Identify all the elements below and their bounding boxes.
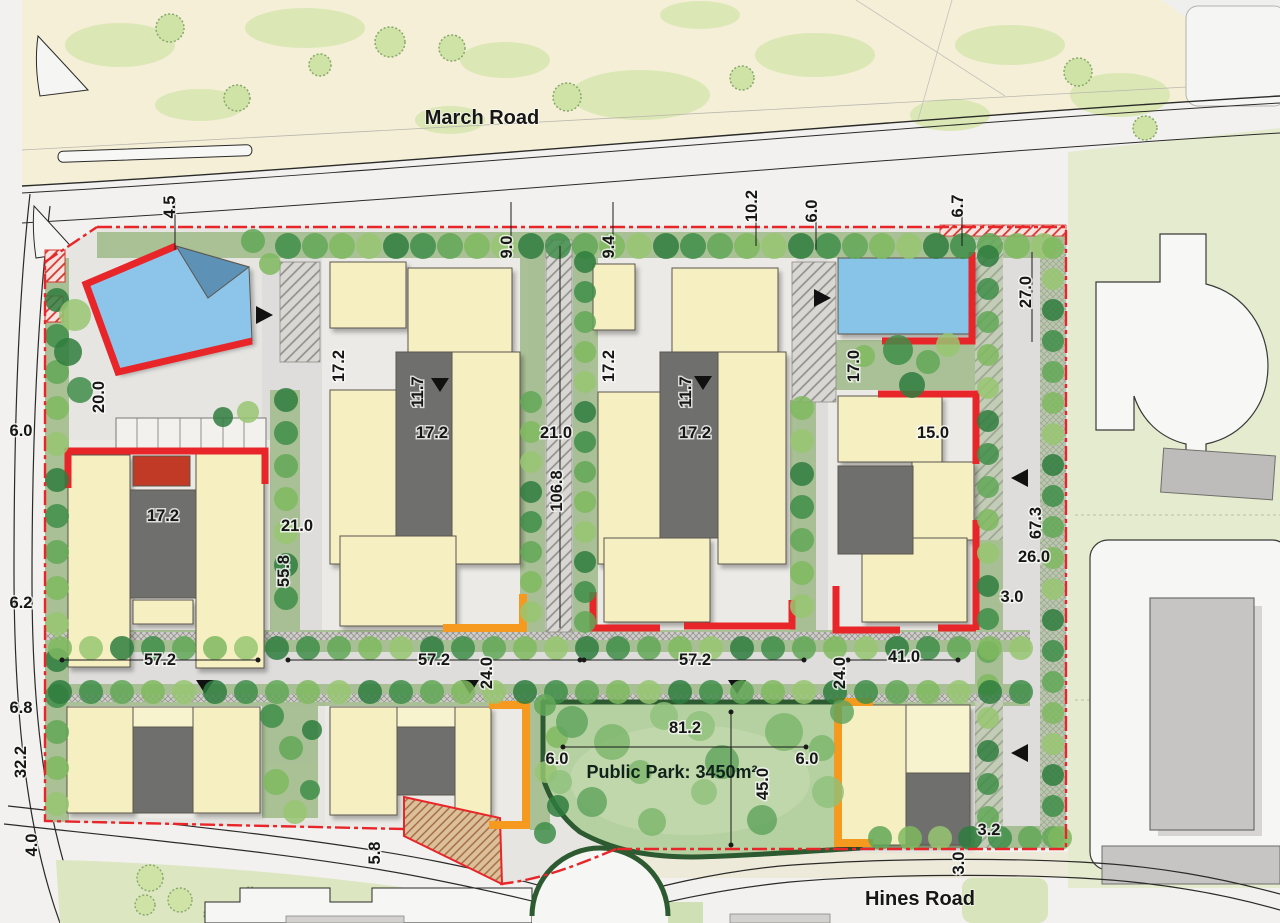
hines-road-label: Hines Road [865, 888, 975, 910]
tree [869, 233, 895, 259]
tree [45, 612, 69, 636]
tree [1042, 609, 1064, 631]
dimension-label: 11.7 [409, 376, 427, 407]
tree [626, 233, 652, 259]
tree [854, 680, 878, 704]
tree [45, 540, 69, 564]
tree [54, 338, 82, 366]
tree [574, 371, 596, 393]
tree [534, 694, 556, 716]
dimension-label: 106.8 [548, 470, 566, 511]
tree [356, 233, 382, 259]
courtyard-d [838, 466, 913, 554]
dimension-label: 6.0 [10, 422, 33, 440]
courtyard-e [133, 727, 193, 813]
dimension-label: 17.2 [679, 424, 711, 442]
tree [520, 541, 542, 563]
tree [947, 680, 971, 704]
tree [885, 680, 909, 704]
tree [574, 521, 596, 543]
tree [574, 281, 596, 303]
tree [950, 233, 976, 259]
tree [1018, 826, 1042, 850]
tree [518, 233, 544, 259]
tree [977, 773, 999, 795]
public-park-label: Public Park: 3450m² [586, 762, 757, 782]
tree [699, 680, 723, 704]
tree [110, 636, 134, 660]
tree [691, 779, 717, 805]
tree [606, 636, 630, 660]
tree [977, 707, 999, 729]
tree [534, 822, 556, 844]
tree [213, 407, 233, 427]
tree [898, 826, 922, 850]
tree [327, 636, 351, 660]
tree [1042, 640, 1064, 662]
dimension-label: 4.5 [161, 196, 179, 219]
tree [637, 636, 661, 660]
tree [1004, 233, 1030, 259]
tree [977, 443, 999, 465]
tree [172, 680, 196, 704]
tree [977, 410, 999, 432]
dimension-label: 11.7 [677, 376, 695, 407]
dimension-label: 17.2 [330, 350, 348, 382]
tree [79, 636, 103, 660]
tree [916, 350, 940, 374]
dimension-label: 17.2 [147, 507, 179, 525]
tree [574, 611, 596, 633]
tree [45, 468, 69, 492]
tree [1042, 485, 1064, 507]
tree [790, 528, 814, 552]
courtyard-f [397, 727, 455, 795]
dimension-label: 17.0 [845, 350, 863, 382]
tree [761, 636, 785, 660]
tree [45, 432, 69, 456]
dimension-label: 24.0 [831, 657, 849, 689]
tree [923, 233, 949, 259]
tree [790, 396, 814, 420]
tree [234, 680, 258, 704]
tree [263, 769, 289, 795]
dimension-label: 45.0 [754, 768, 772, 800]
tree [868, 826, 892, 850]
tree [265, 680, 289, 704]
tree [302, 720, 322, 740]
dimension-label: 17.2 [600, 350, 618, 382]
tree [790, 462, 814, 486]
tree [302, 233, 328, 259]
dimension-label: 3.0 [950, 852, 968, 875]
tree [464, 233, 490, 259]
tree [978, 636, 1002, 660]
dimension-label: 6.0 [546, 750, 569, 768]
tree [520, 421, 542, 443]
tree [977, 245, 999, 267]
tree [574, 431, 596, 453]
tree [1042, 795, 1064, 817]
tree [48, 636, 72, 660]
neighbor-building [1102, 846, 1280, 884]
tree [1042, 454, 1064, 476]
tree [883, 335, 913, 365]
tree [574, 251, 596, 273]
tree [389, 636, 413, 660]
east-lawn [1068, 128, 1280, 888]
tree [241, 229, 265, 253]
tree [594, 724, 630, 760]
tree [203, 680, 227, 704]
tree [274, 454, 298, 478]
tree [279, 736, 303, 760]
tree [275, 233, 301, 259]
tree [815, 233, 841, 259]
tree [916, 680, 940, 704]
tree [788, 233, 814, 259]
tree [977, 377, 999, 399]
tree [1042, 671, 1064, 693]
tree [977, 542, 999, 564]
tree [936, 333, 960, 357]
tree [574, 401, 596, 423]
tree [977, 476, 999, 498]
tree [274, 487, 298, 511]
tree [329, 233, 355, 259]
tree [765, 713, 803, 751]
tree [790, 561, 814, 585]
tree [274, 586, 298, 610]
tree [545, 233, 571, 259]
dimension-label: 57.2 [144, 651, 176, 669]
tree [977, 311, 999, 333]
tree [1042, 733, 1064, 755]
dimension-label: 10.2 [743, 190, 761, 222]
tree [548, 770, 572, 794]
dimension-label: 20.0 [90, 381, 108, 413]
neighbor-building [1150, 598, 1254, 830]
tree [1042, 764, 1064, 786]
tree [358, 680, 382, 704]
tree [1042, 268, 1064, 290]
tree [574, 461, 596, 483]
site-plan-canvas: March Road Hines Road Public Park: 3450m… [0, 0, 1280, 923]
tree [45, 756, 69, 780]
tree [1042, 237, 1064, 259]
tree [45, 396, 69, 420]
tree [637, 680, 661, 704]
tree [296, 680, 320, 704]
dimension-label: 3.2 [978, 821, 1001, 839]
tree [574, 311, 596, 333]
tree [1009, 636, 1033, 660]
tree [1042, 330, 1064, 352]
tree [790, 594, 814, 618]
tree [574, 581, 596, 603]
tree [234, 636, 258, 660]
dimension-label: 6.8 [10, 699, 33, 717]
dimension-label: 55.8 [275, 555, 293, 587]
tree [556, 706, 588, 738]
tree [383, 233, 409, 259]
tree [358, 636, 382, 660]
tree [1042, 578, 1064, 600]
dimension-label: 27.0 [1017, 276, 1035, 308]
tree [520, 511, 542, 533]
tree [45, 576, 69, 600]
dimension-label: 57.2 [418, 651, 450, 669]
tree [59, 299, 91, 331]
shed-building [1161, 448, 1276, 500]
tree [823, 636, 847, 660]
tree [45, 504, 69, 528]
tree [482, 636, 506, 660]
dimension-label: 57.2 [679, 651, 711, 669]
tree [513, 680, 537, 704]
tree [437, 233, 463, 259]
dimension-label: 81.2 [669, 719, 701, 737]
tree [792, 680, 816, 704]
dimension-label: 6.7 [949, 195, 967, 218]
dimension-label: 9.0 [498, 236, 516, 259]
tree [790, 495, 814, 519]
tree [1042, 392, 1064, 414]
tree [1042, 423, 1064, 445]
tree [1042, 516, 1064, 538]
tree [977, 575, 999, 597]
tree [977, 509, 999, 531]
dimension-label: 32.2 [12, 746, 30, 778]
tree [283, 800, 307, 824]
dimension-label: 41.0 [888, 648, 920, 666]
tree [237, 401, 259, 423]
tree [45, 720, 69, 744]
tree [575, 636, 599, 660]
tree [1009, 680, 1033, 704]
tree [574, 341, 596, 363]
tree [574, 491, 596, 513]
tree [680, 233, 706, 259]
tree [1042, 299, 1064, 321]
tree [520, 571, 542, 593]
march-road-label: March Road [425, 107, 539, 129]
tree [1042, 702, 1064, 724]
tree [300, 780, 320, 800]
tree [761, 233, 787, 259]
dimension-label: 21.0 [281, 517, 313, 535]
tree [928, 826, 952, 850]
tree [520, 601, 542, 623]
tree [761, 680, 785, 704]
tree [653, 233, 679, 259]
tree [830, 700, 854, 724]
tree [544, 636, 568, 660]
tree [296, 636, 320, 660]
dimension-label: 4.0 [23, 834, 41, 857]
tree [513, 636, 537, 660]
tree [977, 278, 999, 300]
dimension-label: 6.0 [796, 750, 819, 768]
tree [410, 233, 436, 259]
tree [977, 740, 999, 762]
tree [812, 776, 844, 808]
tree [79, 680, 103, 704]
site-plan: March Road Hines Road Public Park: 3450m… [0, 0, 1280, 923]
tree [45, 792, 69, 816]
dimension-label: 3.0 [1001, 588, 1024, 606]
dimension-label: 17.2 [416, 424, 448, 442]
tree [274, 388, 298, 412]
tree [730, 636, 754, 660]
tree [265, 636, 289, 660]
tree [790, 429, 814, 453]
dimension-label: 5.8 [366, 842, 384, 865]
tree [110, 680, 134, 704]
tree [668, 680, 692, 704]
tree [577, 787, 607, 817]
tree [203, 636, 227, 660]
tree [638, 808, 666, 836]
tree [896, 233, 922, 259]
tree [520, 451, 542, 473]
dimension-label: 21.0 [540, 424, 572, 442]
tree [520, 481, 542, 503]
tree [547, 795, 569, 817]
tree [451, 636, 475, 660]
tree [747, 805, 777, 835]
dimension-label: 6.0 [803, 200, 821, 223]
tree [707, 233, 733, 259]
building-a-accent [133, 456, 190, 486]
tree [260, 704, 284, 728]
tree [141, 680, 165, 704]
tree [854, 636, 878, 660]
tree [520, 391, 542, 413]
tree [730, 680, 754, 704]
tree [420, 680, 444, 704]
tree [978, 680, 1002, 704]
dimension-label: 67.3 [1027, 507, 1045, 539]
tree [899, 372, 925, 398]
landmark-blue-building [838, 258, 974, 334]
dimension-label: 6.2 [10, 594, 33, 612]
tree [259, 253, 281, 275]
tree [842, 233, 868, 259]
tree [792, 636, 816, 660]
dimension-label: 15.0 [917, 424, 949, 442]
tree [947, 636, 971, 660]
tree [389, 680, 413, 704]
tree [48, 680, 72, 704]
tree [574, 551, 596, 573]
tree [977, 608, 999, 630]
tree [606, 680, 630, 704]
tree [575, 680, 599, 704]
tree [977, 344, 999, 366]
tree [1042, 361, 1064, 383]
dimension-label: 9.4 [600, 235, 618, 259]
tree [274, 421, 298, 445]
dimension-label: 26.0 [1018, 548, 1050, 566]
tree [1048, 826, 1072, 850]
dimension-label: 24.0 [478, 657, 496, 689]
tree [451, 680, 475, 704]
tree [327, 680, 351, 704]
